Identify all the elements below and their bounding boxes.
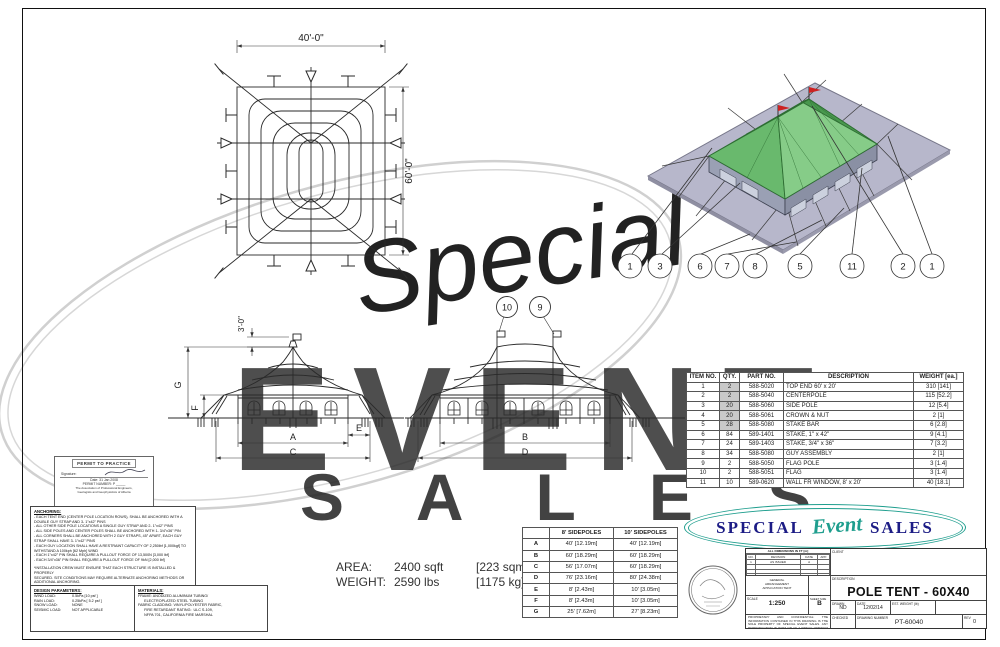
side-tent-outline (405, 331, 685, 418)
text-line: APPLICATION TENT (746, 587, 808, 591)
plan-height-dim: 60'-0" (404, 158, 415, 184)
table-row: 528588-5080STAKE BAR6 [2.8] (687, 420, 964, 430)
table-cell: SEISMIC LOAD: (34, 608, 72, 613)
table-cell: 20 (720, 411, 740, 421)
materials-lines: FRAME: ANODIZED ALUMINUM TUBING/ ELECTRO… (138, 594, 264, 618)
table-cell: STAKE, 1" x 42" (784, 430, 914, 440)
dimensions-table: 8' SIDEPOLES10' SIDEPOLES A40' [12.19m]4… (522, 527, 678, 618)
iso-view-drawing: 1 3 6 7 8 5 11 2 1 (600, 58, 995, 288)
checked-label: CHECKED (832, 616, 848, 620)
table-row: SEISMIC LOAD:NOT APPLICABLE (34, 608, 103, 613)
permit-signature-row: Signature: (57, 468, 151, 477)
checked-cell: CHECKED (831, 615, 856, 628)
table-cell: 40' [12.19m] (614, 539, 678, 550)
table-cell: G (523, 607, 550, 618)
table-cell: GUY ASSEMBLY (784, 449, 914, 459)
text-line: *INSTALLATION CREW MUST ENSURE THAT EACH… (34, 566, 192, 576)
plan-view-drawing: 40'-0" 60'-0" (190, 20, 440, 290)
table-cell: 2 (720, 382, 740, 392)
table-cell: FLAG POLE (784, 459, 914, 469)
drawing-sheet: Special EVENT S A L E S (0, 0, 1000, 647)
description-label: DESCRIPTION (832, 577, 855, 581)
side-elevation-drawing: B D 10 9 (400, 290, 690, 485)
sheet-size-cell: SHEET SIZE B (809, 596, 831, 615)
permit-association: The Association of Professional Engineer… (57, 487, 151, 495)
table-cell: 2 (720, 459, 740, 469)
design-parameters-table: WIND LOAD:0.5kPa [10 psf ]RAIN LOAD:0.25… (34, 594, 103, 613)
svg-text:G: G (173, 381, 183, 388)
area-label: AREA: (336, 560, 394, 574)
table-cell: 10' [3.05m] (614, 584, 678, 595)
text-line: - EACH GUY LOCATION SHALL HAVE A RESTRAI… (34, 544, 192, 554)
table-cell: FLAG (784, 468, 914, 478)
revision-table-cell: ALL DIMENSIONS IN FT [m] NO.REVISIONDATE… (746, 549, 831, 576)
svg-text:F: F (190, 405, 200, 411)
rev-value: 0 (963, 619, 986, 625)
anchoring-title: ANCHORING: (34, 509, 61, 514)
table-row: 834588-5080GUY ASSEMBLY2 [1] (687, 449, 964, 459)
disclaimer-text: PROPRIETARY AND CONFIDENTIAL: THE INFORM… (746, 615, 830, 628)
design-parameters-title: DESIGN PARAMETERS: (34, 588, 82, 593)
table-cell: 84 (720, 430, 740, 440)
table-cell: 25' [7.62m] (550, 607, 614, 618)
table-cell: CROWN & NUT (784, 411, 914, 421)
table-cell: 588-5051 (740, 468, 784, 478)
anchoring-lines: - EACH TENT END (CENTER POLE LOCATION RO… (34, 515, 192, 563)
table-row: G25' [7.62m]27' [8.23m] (523, 607, 678, 618)
weight-label: WEIGHT: (336, 575, 394, 589)
table-cell: 1 (687, 382, 720, 392)
table-row: 320588-5060SIDE POLE12 [5.4] (687, 401, 964, 411)
est-weight-label: EST. WEIGHT (lb) (892, 602, 919, 606)
est-weight-cell: EST. WEIGHT (lb) (891, 601, 936, 615)
logo-word-special: SPECIAL (716, 518, 804, 538)
end-windows (248, 401, 337, 415)
table-cell: A (523, 539, 550, 550)
side-stakes (408, 418, 649, 429)
table-cell: 34 (720, 449, 740, 459)
table-cell: 20 (720, 401, 740, 411)
engineer-seal-icon (686, 562, 740, 618)
table-cell: 7 [3.2] (914, 440, 964, 450)
description-value: POLE TENT - 60X40 (831, 585, 986, 599)
table-cell: 9 (687, 459, 720, 469)
table-cell: 588-5080 (740, 420, 784, 430)
svg-text:A: A (290, 432, 296, 442)
weight-metric: [1175 kg] (476, 575, 529, 589)
table-row: F8' [2.43m]10' [3.05m] (523, 595, 678, 606)
table-cell: 3 [1.4] (914, 459, 964, 469)
side-dim-labels: B D 10 9 (502, 303, 543, 458)
sheet-size-value: B (809, 600, 830, 607)
table-cell: 588-5061 (740, 411, 784, 421)
text-line: Geologists and Geophysicists of Alberta (57, 491, 151, 495)
table-cell: 2 (687, 392, 720, 402)
parts-table: ITEM NO.QTY.PART NO.DESCRIPTIONWEIGHT [e… (686, 372, 964, 488)
weight-value: 2590 lbs (394, 575, 476, 589)
text-line: - EACH TENT END (CENTER POLE LOCATION RO… (34, 515, 192, 525)
table-cell: 3 [1.4] (914, 468, 964, 478)
column-header: DESCRIPTION (784, 373, 914, 383)
spare-cell (809, 576, 831, 596)
text-line: NFPA 701, CALIFORNIA FIRE MARSHAL (138, 613, 264, 618)
svg-text:1: 1 (929, 262, 934, 273)
table-cell: 4 (687, 411, 720, 421)
signature-scribble-icon (103, 468, 147, 477)
end-tent-outline (168, 334, 404, 418)
area-value: 2400 sqft (394, 560, 476, 574)
table-cell: CENTERPOLE (784, 392, 914, 402)
table-row: 92588-5050FLAG POLE3 [1.4] (687, 459, 964, 469)
table-cell: 588-5060 (740, 401, 784, 411)
description-cell: DESCRIPTION POLE TENT - 60X40 (831, 576, 986, 601)
table-cell: 12 [5.4] (914, 401, 964, 411)
table-cell: 5 (687, 420, 720, 430)
table-cell: 8' [2.43m] (550, 595, 614, 606)
table-row: A40' [12.19m]40' [12.19m] (523, 539, 678, 550)
table-cell: 588-5080 (740, 449, 784, 459)
table-row: 684589-1401STAKE, 1" x 42"9 [4.1] (687, 430, 964, 440)
svg-text:7: 7 (724, 262, 729, 273)
svg-text:9: 9 (537, 303, 542, 313)
scale-cell: SCALE 1:250 (746, 596, 809, 615)
table-row: D76' [23.16m]80' [24.38m] (523, 573, 678, 584)
table-cell: TOP END 60' x 20' (784, 382, 914, 392)
drawn-cell: DRAWN ND (831, 601, 856, 615)
column-header: PART NO. (740, 373, 784, 383)
column-header: 10' SIDEPOLES (614, 528, 678, 539)
column-header: 8' SIDEPOLES (550, 528, 614, 539)
logo-word-event: Event (811, 511, 863, 539)
table-row: 12588-5020TOP END 60' x 20'310 [141] (687, 382, 964, 392)
dims-table-header: 8' SIDEPOLES10' SIDEPOLES (523, 528, 678, 539)
table-cell: 115 [52.2] (914, 392, 964, 402)
table-cell: STAKE BAR (784, 420, 914, 430)
table-cell: 60' [18.29m] (550, 550, 614, 561)
general-note-cell: GENERALARRANGEMENTAPPLICATION TENT (746, 576, 809, 596)
svg-text:6: 6 (697, 262, 702, 273)
materials-title: MATERIALS: (138, 588, 164, 593)
drawing-number-cell: DRAWING NUMBER PT-60040 (856, 615, 963, 628)
area-weight-summary: AREA: 2400 sqft [223 sqm] WEIGHT: 2590 l… (336, 560, 529, 589)
client-cell: CLIENT (831, 549, 986, 576)
table-cell: STAKE, 3/4" x 36" (784, 440, 914, 450)
svg-text:E: E (356, 423, 362, 433)
general-note-lines: GENERALARRANGEMENTAPPLICATION TENT (746, 579, 808, 591)
svg-text:10: 10 (502, 303, 512, 313)
table-row: C56' [17.07m]60' [18.29m] (523, 561, 678, 572)
column-header: WEIGHT [ea.] (914, 373, 964, 383)
rev-cell: REV 0 (963, 615, 986, 628)
table-cell: B (523, 550, 550, 561)
svg-text:1: 1 (627, 262, 632, 273)
anchoring-notes: ANCHORING: - EACH TENT END (CENTER POLE … (30, 506, 196, 591)
table-cell: 310 [141] (914, 382, 964, 392)
company-logo: SPECIAL Event SALES (684, 504, 966, 551)
table-row: 102588-5051FLAG3 [1.4] (687, 468, 964, 478)
table-cell: 80' [24.38m] (614, 573, 678, 584)
table-cell: 588-5050 (740, 459, 784, 469)
table-row: 724589-1403STAKE, 3/4" x 36"7 [3.2] (687, 440, 964, 450)
table-cell: SIDE POLE (784, 401, 914, 411)
client-label: CLIENT (832, 550, 844, 554)
table-cell: 7 (687, 440, 720, 450)
column-header: ITEM NO. (687, 373, 720, 383)
date-value: 12/02/14 (856, 605, 890, 611)
svg-text:5: 5 (797, 262, 802, 273)
svg-text:C: C (290, 447, 297, 457)
column-header: QTY. (720, 373, 740, 383)
table-cell: 589-1401 (740, 430, 784, 440)
svg-text:2: 2 (900, 262, 905, 273)
text-line: - ALL CORNERS SHALL BE ANCHORED WITH 2 G… (34, 534, 192, 544)
disclaimer-cell: PROPRIETARY AND CONFIDENTIAL: THE INFORM… (746, 615, 831, 628)
blank-cell (936, 601, 986, 615)
anchoring-footnote: *INSTALLATION CREW MUST ENSURE THAT EACH… (34, 566, 192, 585)
table-row: B60' [18.29m]60' [18.29m] (523, 550, 678, 561)
area-metric: [223 sqm] (476, 560, 529, 574)
table-row: 1110589-0620WALL FR WINDOW, 8' x 20'40 [… (687, 478, 964, 488)
iso-callout-numbers: 1 3 6 7 8 5 11 2 1 (627, 262, 934, 273)
table-cell: 9 [4.1] (914, 430, 964, 440)
materials-notes: MATERIALS: FRAME: ANODIZED ALUMINUM TUBI… (134, 585, 268, 632)
parts-table-header: ITEM NO.QTY.PART NO.DESCRIPTIONWEIGHT [e… (687, 373, 964, 383)
svg-text:11: 11 (847, 262, 857, 273)
permit-title: PERMIT TO PRACTICE (72, 459, 136, 468)
drawing-number-value: PT-60040 (856, 619, 962, 626)
table-cell: 2 [1] (914, 411, 964, 421)
svg-text:B: B (522, 432, 528, 442)
table-cell: 3 (687, 401, 720, 411)
table-cell: 10' [3.05m] (614, 595, 678, 606)
table-cell: 589-1403 (740, 440, 784, 450)
table-cell: NOT APPLICABLE (72, 608, 103, 613)
svg-text:3'-0": 3'-0" (237, 316, 246, 332)
logo-word-sales: SALES (870, 518, 934, 538)
column-header (523, 528, 550, 539)
table-row: E8' [2.43m]10' [3.05m] (523, 584, 678, 595)
table-cell: 10 (687, 468, 720, 478)
svg-text:8: 8 (752, 262, 757, 273)
end-elevation-drawing: 3'-0" G F A E C (160, 290, 420, 485)
table-cell: 2 (720, 468, 740, 478)
table-cell: 8' [2.43m] (550, 584, 614, 595)
drawn-value: ND (831, 605, 855, 611)
table-cell: D (523, 573, 550, 584)
table-cell: 27' [8.23m] (614, 607, 678, 618)
table-cell: WALL FR WINDOW, 8' x 20' (784, 478, 914, 488)
table-cell: E (523, 584, 550, 595)
table-cell: 2 (720, 392, 740, 402)
table-cell: 589-0620 (740, 478, 784, 488)
table-cell: 2 [1] (914, 449, 964, 459)
table-cell: C (523, 561, 550, 572)
table-row: 420588-5061CROWN & NUT2 [1] (687, 411, 964, 421)
table-cell: 6 (687, 430, 720, 440)
table-cell: 76' [23.16m] (550, 573, 614, 584)
table-cell: 588-5020 (740, 382, 784, 392)
table-cell: 28 (720, 420, 740, 430)
revision-table: NO.REVISIONDATEAPP. 1AS ISSUEDA (746, 554, 830, 576)
table-cell: 11 (687, 478, 720, 488)
permit-signature-label: Signature: (61, 472, 76, 477)
design-parameters: DESIGN PARAMETERS: WIND LOAD:0.5kPa [10 … (30, 585, 142, 632)
end-stakes (198, 418, 382, 428)
plan-dimensions (237, 40, 409, 255)
plan-width-dim: 40'-0" (298, 33, 324, 44)
table-cell: 60' [18.29m] (614, 550, 678, 561)
svg-text:D: D (522, 447, 529, 457)
table-cell: 24 (720, 440, 740, 450)
table-cell: 60' [18.29m] (614, 561, 678, 572)
table-cell: 40' [12.19m] (550, 539, 614, 550)
table-cell: 588-5040 (740, 392, 784, 402)
title-block: ALL DIMENSIONS IN FT [m] NO.REVISIONDATE… (745, 548, 987, 629)
plan-outline (217, 67, 405, 275)
table-cell: 6 [2.8] (914, 420, 964, 430)
table-cell: 56' [17.07m] (550, 561, 614, 572)
date-cell: DATE 12/02/14 (856, 601, 891, 615)
table-cell: F (523, 595, 550, 606)
table-cell: 40 [18.1] (914, 478, 964, 488)
svg-text:3: 3 (657, 262, 662, 273)
table-cell: 10 (720, 478, 740, 488)
table-row: 22588-5040CENTERPOLE115 [52.2] (687, 392, 964, 402)
table-cell: 8 (687, 449, 720, 459)
scale-value: 1:250 (746, 600, 808, 607)
